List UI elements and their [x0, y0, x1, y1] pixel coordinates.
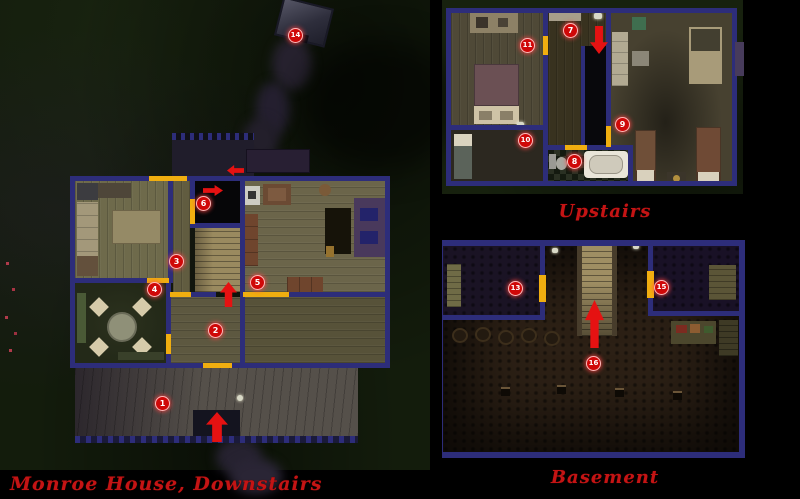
- wall: [240, 297, 245, 363]
- marker-6: 6: [196, 196, 211, 211]
- door: [243, 292, 289, 297]
- door: [543, 36, 548, 55]
- wall: [451, 125, 543, 130]
- marker-15: 15: [654, 280, 669, 295]
- basement-outer-wall: [437, 240, 745, 458]
- wall: [195, 223, 240, 228]
- door: [166, 334, 171, 354]
- panel-divider: [430, 0, 442, 499]
- door: [190, 199, 195, 224]
- caption-downstairs: Monroe House, Downstairs: [10, 473, 425, 495]
- caption-upstairs: Upstairs: [520, 201, 690, 222]
- house-outer-wall: [70, 176, 390, 368]
- upstairs-outer-wall: [446, 8, 737, 186]
- marker-8: 8: [567, 154, 582, 169]
- marker-14: 14: [288, 28, 303, 43]
- door: [565, 145, 587, 150]
- marker-1: 1: [155, 396, 170, 411]
- marker-5: 5: [250, 275, 265, 290]
- door: [203, 363, 232, 368]
- door: [170, 292, 191, 297]
- marker-10: 10: [518, 133, 533, 148]
- marker-9: 9: [615, 117, 630, 132]
- door: [539, 275, 546, 302]
- flower-dot: [14, 332, 17, 335]
- caption-basement: Basement: [520, 467, 690, 488]
- chimney: [735, 42, 744, 76]
- deck-railing: [172, 133, 254, 140]
- door: [647, 271, 654, 298]
- stairwell-wall: [581, 46, 585, 147]
- fireplace: [354, 198, 385, 257]
- flower-dot: [5, 316, 8, 319]
- door: [606, 126, 611, 147]
- flower-dot: [12, 288, 15, 291]
- marker-7: 7: [563, 23, 578, 38]
- wall: [443, 315, 545, 320]
- marker-3: 3: [169, 254, 184, 269]
- fireplace-opening: [360, 208, 378, 221]
- marker-11: 11: [520, 38, 535, 53]
- wall: [648, 311, 739, 316]
- porch-lamp: [237, 395, 243, 401]
- marker-13: 13: [508, 281, 523, 296]
- marker-2: 2: [208, 323, 223, 338]
- wall: [240, 181, 245, 297]
- wall: [543, 145, 633, 150]
- marker-16: 16: [586, 356, 601, 371]
- marker-4: 4: [147, 282, 162, 297]
- fireplace-opening: [360, 231, 378, 244]
- piano: [246, 149, 310, 173]
- wall: [628, 150, 633, 181]
- flower-dot: [6, 262, 9, 265]
- flower-dot: [9, 349, 12, 352]
- screenshot-canvas: Monroe House, Downstairs Upstairs Baseme…: [0, 0, 800, 499]
- door: [149, 176, 187, 181]
